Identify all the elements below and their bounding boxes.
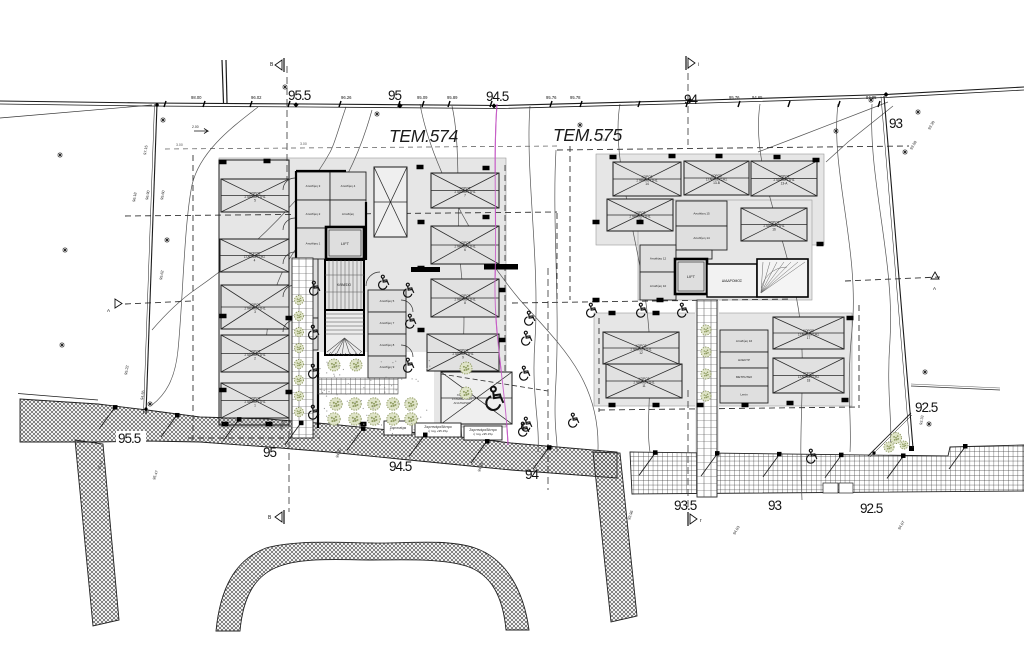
svg-text:ΔΙΑΔΡΟΜΟΣ: ΔΙΑΔΡΟΜΟΣ [722,279,742,283]
svg-text:Αποθήκη: Αποθήκη [342,212,355,216]
svg-text:94.65: 94.65 [752,95,763,100]
svg-text:Αποθήκη 14: Αποθήκη 14 [693,236,710,240]
svg-text:ΚΛΙΜ/ΣΙΟ: ΚΛΙΜ/ΣΙΟ [337,283,352,287]
svg-text:13-A: 13-A [781,182,789,186]
svg-text:ή ποχ +95.15μ: ή ποχ +95.15μ [428,429,448,433]
svg-text:95.89: 95.89 [447,95,458,100]
svg-text:A: A [107,308,110,313]
svg-text:16: 16 [772,228,776,232]
svg-text:1: 1 [254,404,256,408]
svg-text:Ζαρντινιέρα: Ζαρντινιέρα [390,426,407,430]
svg-text:4: 4 [254,259,256,263]
svg-text:13-B: 13-B [713,181,720,185]
svg-text:Αποθήκη 16: Αποθήκη 16 [736,339,753,343]
svg-text:LIFT: LIFT [687,274,696,279]
svg-text:Αποθήκη 2: Αποθήκη 2 [306,212,321,216]
svg-text:95.5: 95.5 [118,431,141,446]
svg-text:6: 6 [464,248,466,252]
svg-text:96.26: 96.26 [341,95,352,100]
svg-text:92.5: 92.5 [915,400,938,415]
svg-text:94: 94 [684,92,699,107]
svg-text:98.00: 98.00 [191,95,202,100]
svg-text:2.00: 2.00 [192,125,199,129]
svg-text:93: 93 [768,498,782,513]
svg-text:95.5: 95.5 [288,88,311,103]
svg-text:ΗΛΕΚΤΡ: ΗΛΕΚΤΡ [738,358,750,362]
svg-text:93: 93 [889,116,903,131]
svg-text:9: 9 [462,356,464,360]
svg-text:ΤΕΜ.575: ΤΕΜ.575 [553,125,622,145]
svg-text:Lenin: Lenin [740,393,748,397]
svg-text:92.5: 92.5 [860,501,883,516]
svg-text:3: 3 [254,310,256,314]
svg-text:95.78: 95.78 [570,95,581,100]
svg-text:Αποθήκη 1: Αποθήκη 1 [306,242,321,246]
svg-text:Αποθήκη 10: Αποθήκη 10 [650,284,667,288]
svg-text:94.5: 94.5 [486,89,509,104]
svg-text:Αποθήκη 12: Αποθήκη 12 [650,257,667,261]
svg-text:14: 14 [645,182,649,186]
svg-text:Αποθήκη 7: Αποθήκη 7 [380,321,395,325]
svg-text:Αποθήκη 3: Αποθήκη 3 [306,184,321,188]
svg-text:3.00: 3.00 [176,143,183,147]
svg-text:LIFT: LIFT [341,241,350,246]
svg-text:18: 18 [807,379,811,383]
svg-text:7: 7 [464,194,466,198]
svg-text:17: 17 [807,336,811,340]
svg-text:ή ποχ +95.15μ: ή ποχ +95.15μ [473,432,493,436]
svg-text:95.76: 95.76 [729,95,740,100]
svg-text:ΑΝΑΠΗΡΩΝ: ΑΝΑΠΗΡΩΝ [454,401,471,405]
svg-text:5: 5 [254,199,256,203]
svg-text:Αποθήκη 9: Αποθήκη 9 [380,365,395,369]
svg-text:11: 11 [642,384,646,388]
svg-text:ΤΕΜ.574: ΤΕΜ.574 [389,126,458,146]
svg-text:A: A [933,286,936,291]
svg-text:8: 8 [464,301,466,305]
svg-text:Αποθήκη 5: Αποθήκη 5 [380,299,395,303]
svg-text:94: 94 [525,467,540,482]
svg-text:Αποθήκη 8: Αποθήκη 8 [380,343,395,347]
svg-text:95.76: 95.76 [546,95,557,100]
svg-text:95: 95 [388,88,402,103]
svg-text:12: 12 [639,351,643,355]
svg-text:96.02: 96.02 [251,95,262,100]
svg-text:Αποθήκη 4: Αποθήκη 4 [341,184,356,188]
svg-text:94.5: 94.5 [389,459,412,474]
svg-text:95.09: 95.09 [417,95,428,100]
svg-text:i: i [698,62,699,68]
svg-text:95: 95 [263,445,277,460]
svg-text:ΜΕΤΡΗΤΕΣ: ΜΕΤΡΗΤΕΣ [736,375,752,379]
svg-text:93.5: 93.5 [674,498,697,513]
svg-text:Αποθήκη 15: Αποθήκη 15 [693,212,710,216]
svg-text:3.00: 3.00 [300,142,307,146]
svg-text:2: 2 [254,357,256,361]
